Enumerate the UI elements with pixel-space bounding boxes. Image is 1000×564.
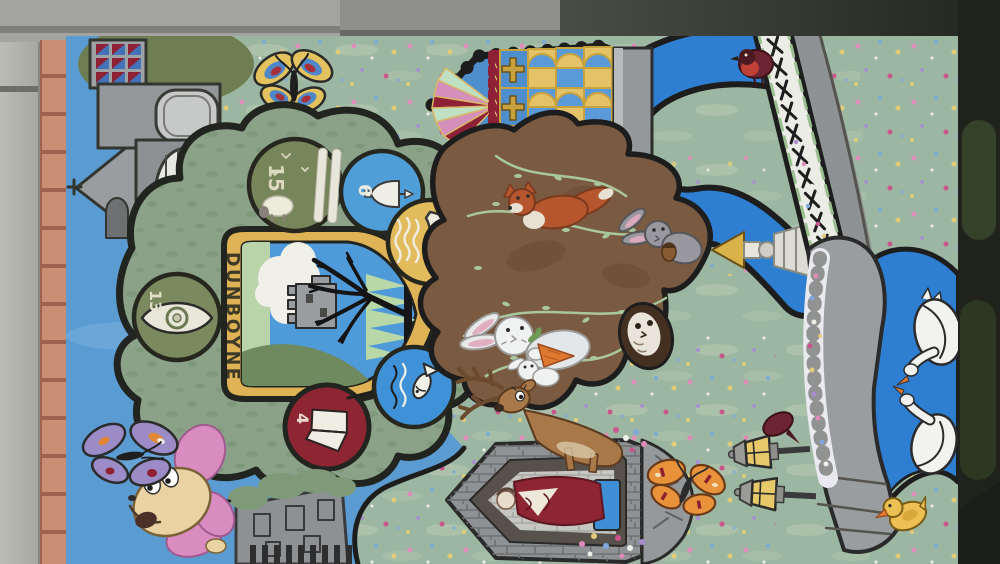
badge-sheep-15: 15	[249, 139, 342, 231]
kerb-joint	[0, 86, 38, 92]
river-bank-top	[858, 36, 958, 274]
badge-number: 6	[354, 184, 375, 197]
concrete-kerb	[0, 42, 40, 564]
moss-patch	[962, 120, 996, 240]
church-door	[106, 198, 128, 238]
badge-number: 15	[264, 164, 288, 192]
brick-pillar	[40, 40, 68, 564]
moss-patch	[960, 300, 996, 480]
photo-of-mural: DUNBOYNE 15 6	[0, 0, 1000, 564]
picket-fence	[250, 545, 352, 564]
badge-number: 13	[146, 290, 165, 312]
crest-title: DUNBOYNE	[222, 252, 242, 382]
mural-board: DUNBOYNE 15 6	[66, 36, 958, 564]
pavement-groove	[0, 26, 340, 33]
badge-ball-13: 13	[134, 274, 220, 360]
badge-number: 4	[293, 413, 312, 424]
tower-windows	[96, 44, 141, 83]
